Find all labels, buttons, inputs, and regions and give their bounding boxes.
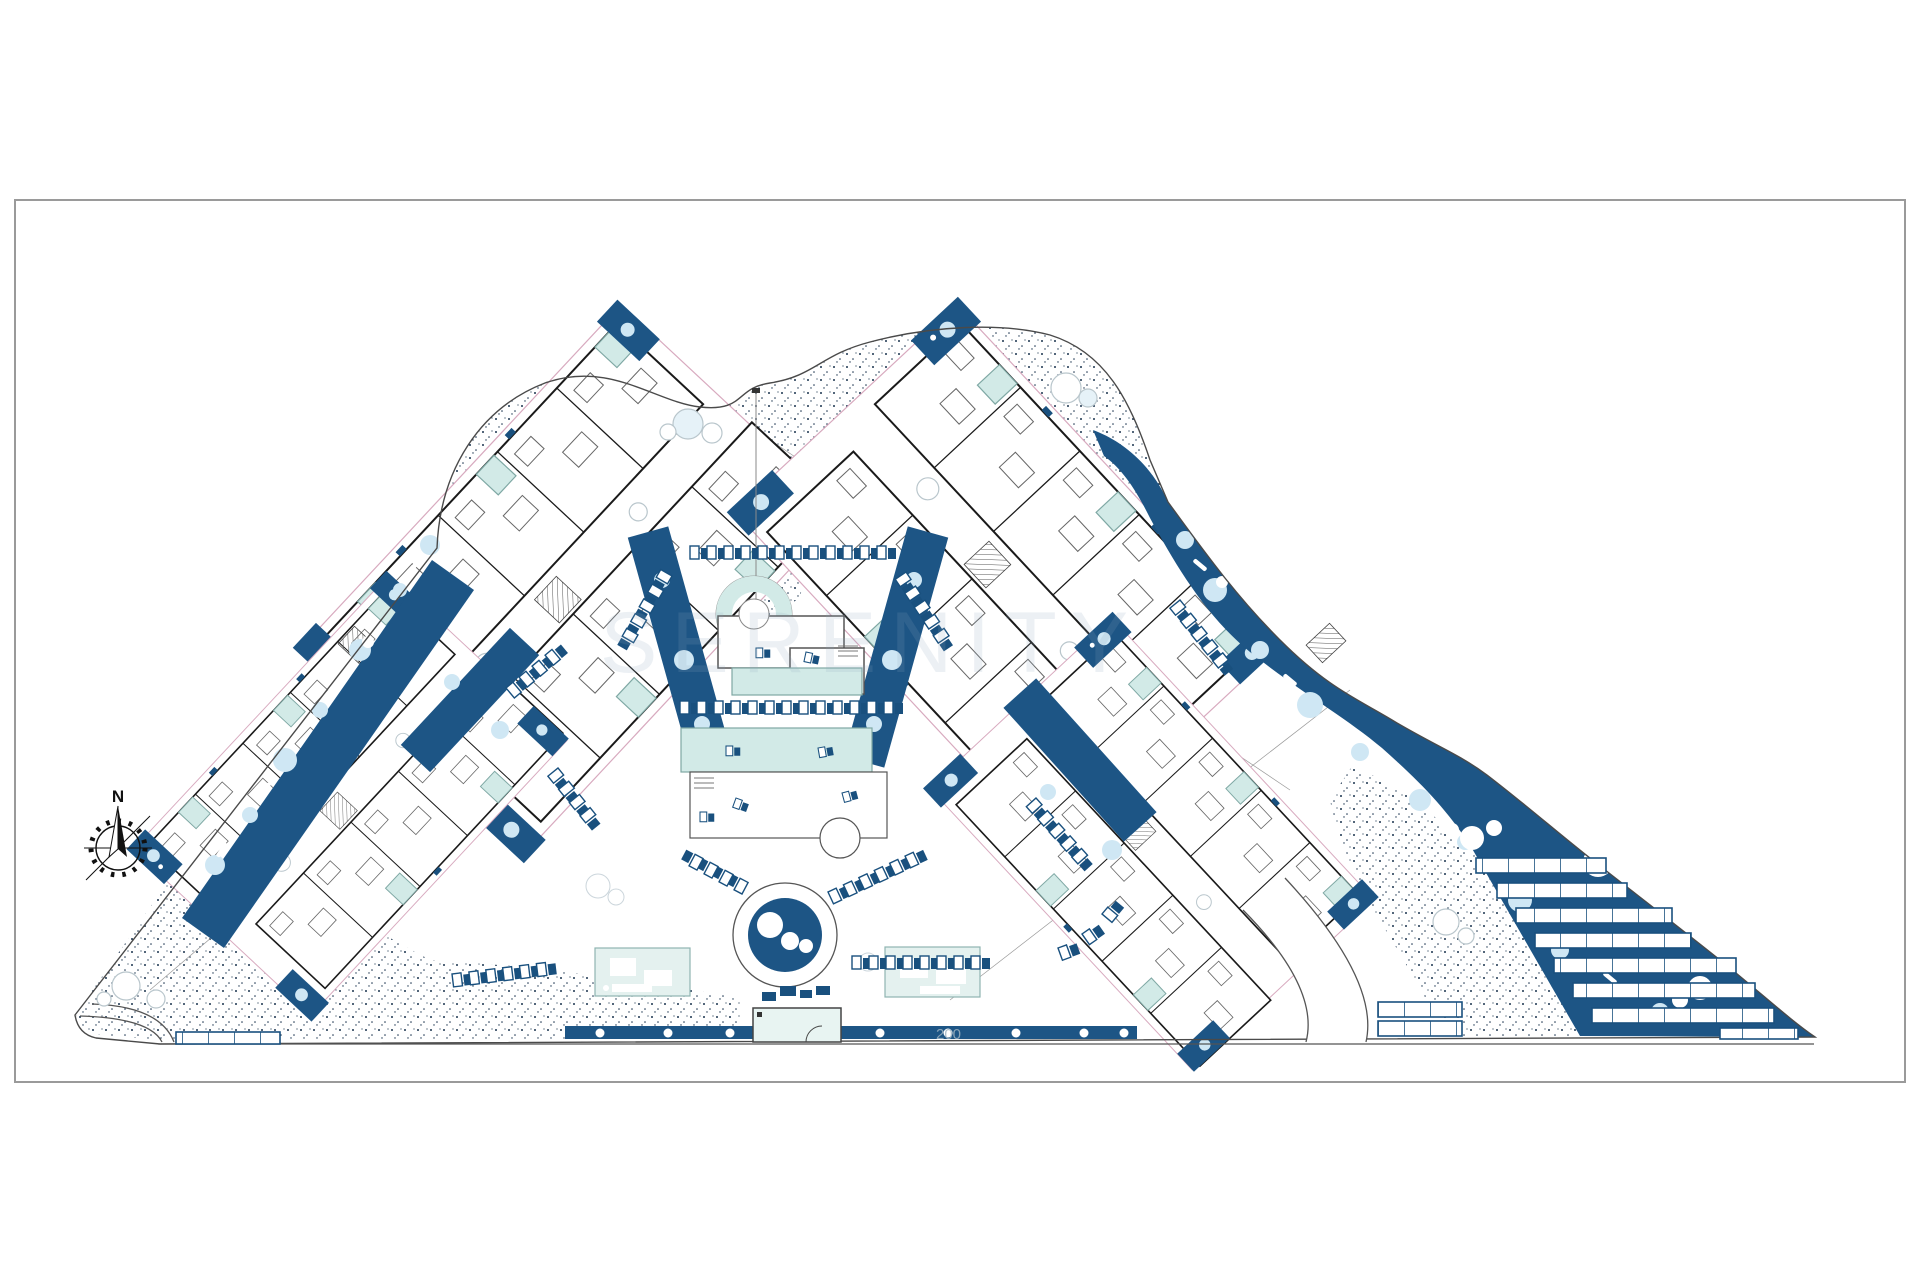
panel-row [1592, 1008, 1774, 1023]
street-stalls-corner [1378, 1002, 1462, 1017]
road-marker-label: 200 [936, 1026, 961, 1043]
panel-row [1516, 908, 1672, 923]
hedge-strip [565, 1026, 1137, 1039]
site-plan-canvas: N 200 SERENITY [0, 0, 1920, 1280]
lounger-chain [680, 701, 903, 714]
panel-row [1497, 883, 1627, 898]
panel-row-partial [1720, 1028, 1798, 1039]
street-stalls-left [176, 1032, 280, 1044]
street-stalls-corner [1378, 1021, 1462, 1036]
central-plaza [733, 883, 837, 987]
jacuzzi-circle [820, 818, 860, 858]
drawing-sheet: N 200 SERENITY [0, 0, 1920, 1280]
panel-row [1476, 858, 1606, 873]
compass-north-label: N [112, 787, 124, 806]
lap-pool-lower [681, 728, 872, 772]
watermark-text: SERENITY [600, 595, 1142, 691]
panel-row [1535, 933, 1691, 948]
panel-row [1554, 958, 1736, 973]
centerline-marker [752, 388, 760, 393]
panel-row [1573, 983, 1755, 998]
